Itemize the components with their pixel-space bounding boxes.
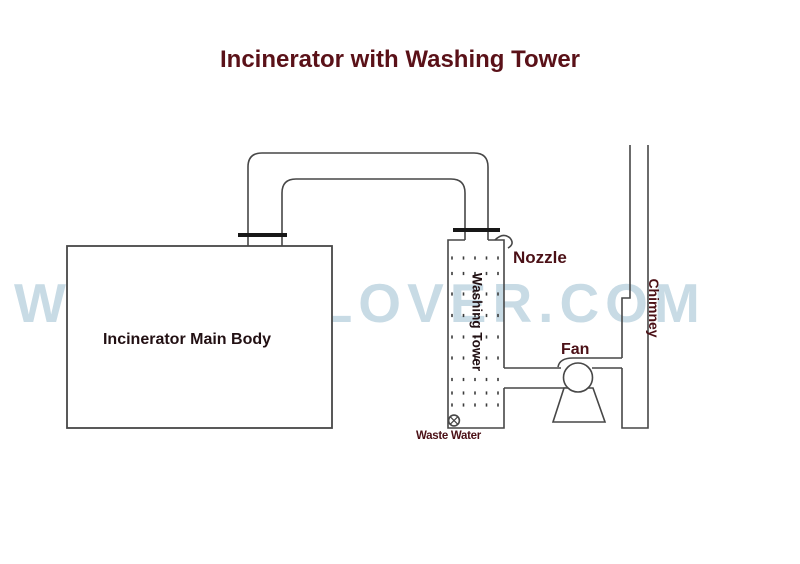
- chimney: [622, 145, 648, 428]
- incinerator-label: Incinerator Main Body: [103, 331, 271, 348]
- incinerator-diagram: Incinerator Main Body Washing Tower Nozz…: [0, 0, 800, 564]
- diagram-stage: WWW.HICLOVER.COM Incinerator with Washin…: [0, 0, 800, 564]
- washing-tower-label: Washing Tower: [470, 273, 485, 372]
- nozzle-label: Nozzle: [513, 248, 567, 267]
- waste-water-drain: [449, 415, 460, 426]
- fan-impeller: [564, 363, 593, 392]
- fan-label: Fan: [561, 341, 589, 358]
- flue-duct-inner: [282, 179, 465, 246]
- page-title: Incinerator with Washing Tower: [0, 46, 800, 74]
- flue-duct-outer: [248, 153, 488, 246]
- chimney-label: Chimney: [646, 278, 662, 337]
- waste-water-label: Waste Water: [416, 430, 482, 442]
- fan-base: [553, 388, 605, 422]
